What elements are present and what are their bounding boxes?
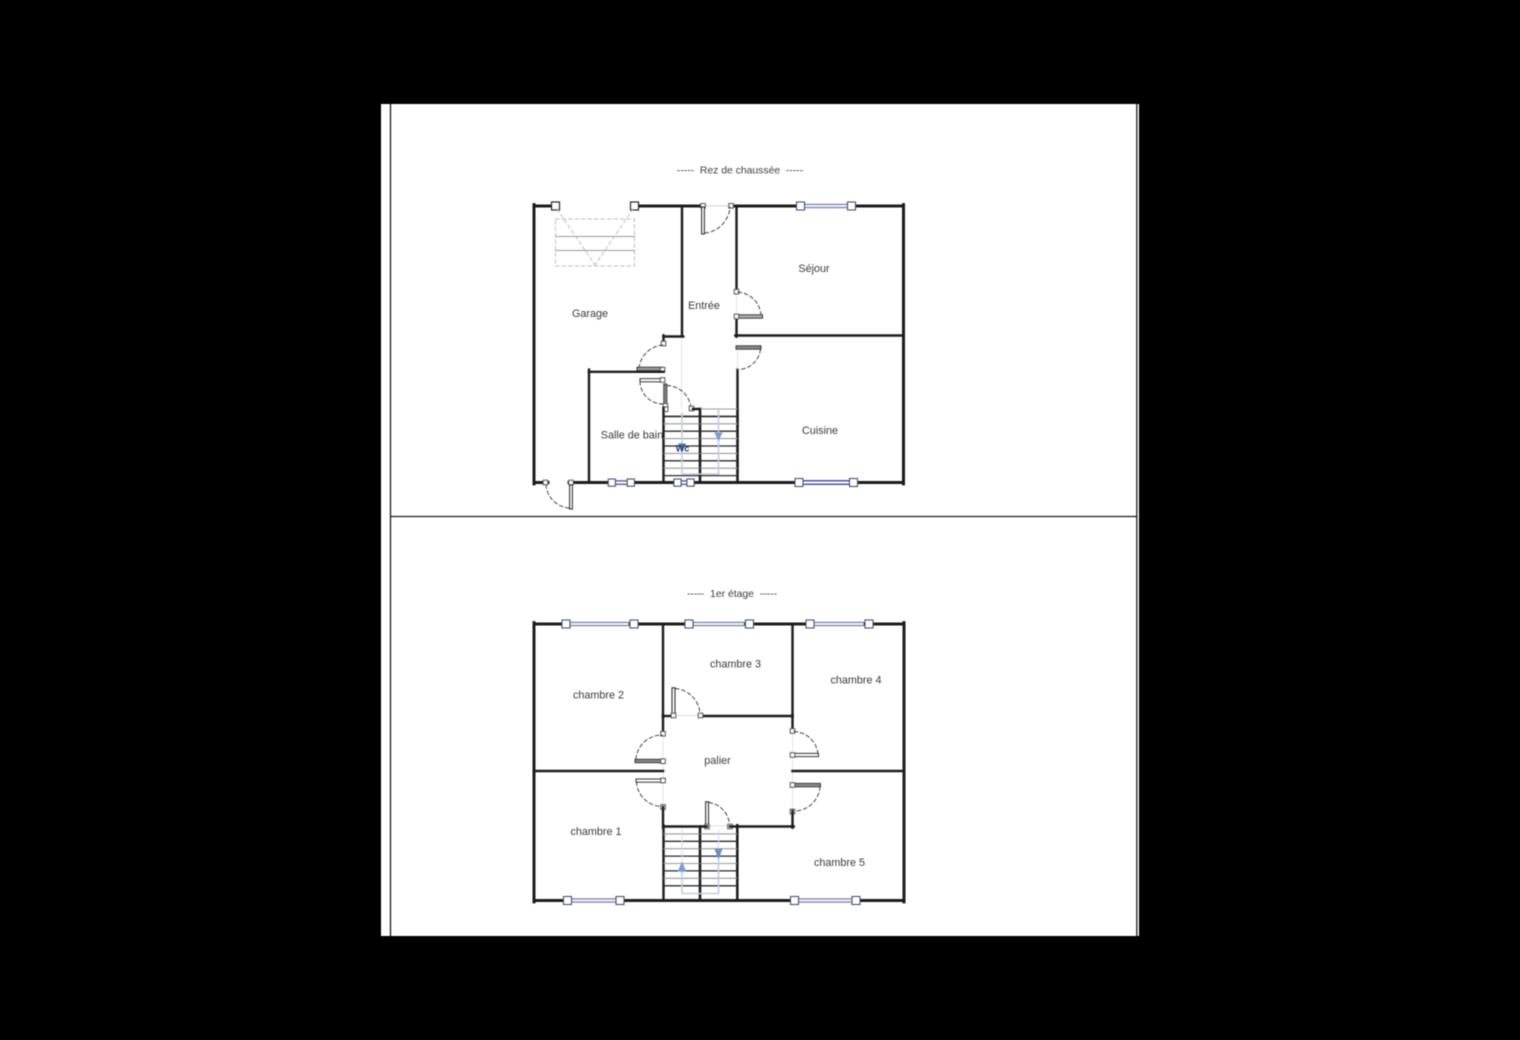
svg-text:chambre 5: chambre 5 <box>814 857 865 869</box>
svg-text:palier: palier <box>704 755 731 767</box>
svg-text:Séjour: Séjour <box>798 263 830 275</box>
svg-text:chambre 1: chambre 1 <box>570 826 621 838</box>
svg-text:Garage: Garage <box>572 308 608 320</box>
svg-text:chambre 3: chambre 3 <box>710 658 761 670</box>
svg-text:----- 1er étage -----: ----- 1er étage ----- <box>687 589 777 600</box>
svg-text:chambre 2: chambre 2 <box>573 689 624 701</box>
svg-text:----- Rez de chaussée -----: ----- Rez de chaussée ----- <box>677 166 803 177</box>
svg-text:Wc: Wc <box>676 444 690 454</box>
svg-text:Cuisine: Cuisine <box>802 425 838 437</box>
svg-text:Salle de bain: Salle de bain <box>601 430 663 442</box>
svg-text:Entrée: Entrée <box>688 300 720 312</box>
svg-text:chambre 4: chambre 4 <box>830 675 881 687</box>
